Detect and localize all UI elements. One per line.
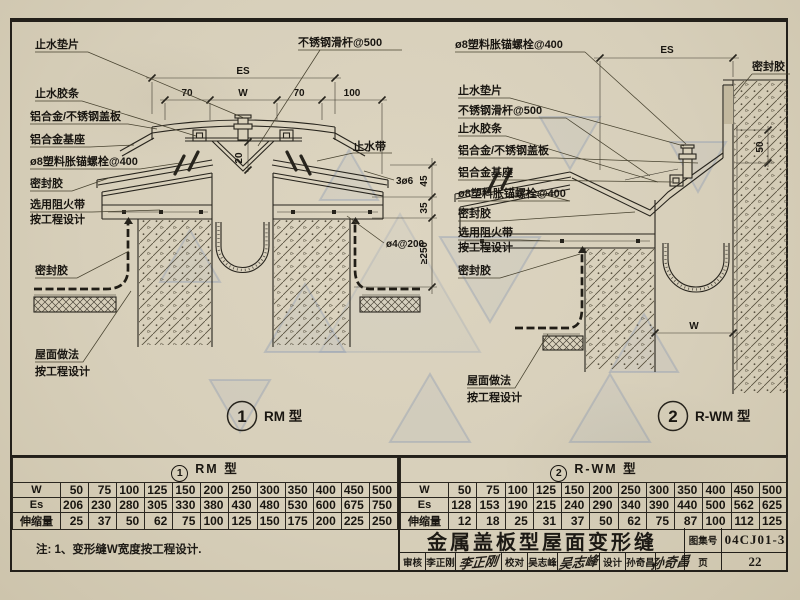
label-cover-plate: 铝合金/不锈钢盖板 [30, 109, 122, 123]
table-cell: 430 [229, 497, 257, 512]
right-caption-number: 2 [668, 407, 677, 426]
table-cell: 440 [675, 497, 703, 512]
label-slide-rod: 不锈钢滑杆@500 [458, 103, 542, 117]
table-cell: 87 [675, 512, 703, 529]
table-cell: 450 [731, 482, 759, 497]
rm-row-ext: 伸缩量 2537506275100125150175200225250 [13, 512, 398, 529]
atlas-number: 04CJ01-3 [722, 528, 788, 552]
table-cell: 230 [89, 497, 117, 512]
table-cell: 50 [449, 482, 477, 497]
label-fire-barrier-2: 按工程设计 [30, 212, 85, 226]
table-cell: 562 [731, 497, 759, 512]
dim-70b: 70 [293, 88, 305, 99]
table-cell: 200 [201, 482, 229, 497]
table-cell: 390 [646, 497, 674, 512]
rwm-table-title: R-WM 型 [574, 462, 637, 476]
rwm-table-half: 2R-WM 型 W 507510012515020025030035040045… [400, 457, 788, 528]
dim-w-right: W [689, 321, 699, 332]
left-caption-text: RM 型 [264, 408, 303, 424]
table-cell: 150 [173, 482, 201, 497]
table-cell: 100 [201, 512, 229, 529]
label-sealant-lower: 密封胶 [458, 263, 491, 277]
rm-table-half: 1RM 型 W 50751001251502002503003504004505… [12, 457, 400, 528]
table-cell: 225 [341, 512, 369, 529]
table-cell: 37 [89, 512, 117, 529]
note-text: 注: 1、变形缝W宽度按工程设计. [36, 541, 201, 557]
label-rubber-strip: 止水胶条 [458, 121, 503, 135]
table-cell: 300 [257, 482, 285, 497]
label-anchor-bolt: ø8塑料胀锚螺栓@400 [458, 186, 566, 200]
table-cell: 112 [731, 512, 759, 529]
rwm-number-badge: 2 [550, 465, 567, 482]
table-cell: 75 [89, 482, 117, 497]
label-alum-base: 铝合金基座 [30, 132, 85, 146]
table-cell: 250 [229, 482, 257, 497]
right-detail-concrete-hatch [586, 81, 788, 393]
table-cell: 125 [533, 482, 561, 497]
table-cell: 206 [61, 497, 89, 512]
table-cell: 75 [477, 482, 505, 497]
title-block: 金属盖板型屋面变形缝 图集号 04CJ01-3 审核 李正刚 李正刚 校对 吴志… [400, 528, 788, 570]
table-cell: 340 [618, 497, 646, 512]
label-cover-plate: 铝合金/不锈钢盖板 [458, 143, 550, 157]
audit-name: 李正刚 [426, 553, 456, 570]
rm-number-badge: 1 [171, 465, 188, 482]
right-caption-text: R-WM 型 [695, 408, 751, 424]
table-cell: 100 [505, 482, 533, 497]
page-label: 页 [685, 553, 722, 570]
label-fire-barrier-1: 选用阻火带 [458, 225, 513, 239]
table-cell: 50 [61, 482, 89, 497]
table-cell: 100 [117, 482, 145, 497]
rm-table-header: 1RM 型 [13, 458, 398, 483]
label-roof-finish-2: 按工程设计 [467, 390, 522, 404]
left-detail-u-waterstop [216, 222, 269, 273]
table-cell: 153 [477, 497, 505, 512]
label-alum-base: 铝合金基座 [458, 165, 513, 179]
dim-es-right: ES [660, 45, 674, 56]
table-cell: 250 [369, 512, 397, 529]
table-cell: 400 [313, 482, 341, 497]
table-cell: 675 [341, 497, 369, 512]
sheet: ES 70 W 70 100 20 45 35 [0, 0, 800, 600]
label-3d6: 3ø6 [396, 176, 414, 187]
dim-w: W [238, 88, 248, 99]
label-fire-barrier-1: 选用阻火带 [30, 197, 85, 211]
label-fire-barrier-2: 按工程设计 [458, 240, 513, 254]
left-detail: ES 70 W 70 100 20 45 35 [30, 35, 437, 431]
table-cell: 150 [562, 482, 590, 497]
rm-row-es: Es 206230280305330380430480530600675750 [13, 497, 398, 512]
table-cell: 380 [201, 497, 229, 512]
rm-row-w-label: W [13, 482, 61, 497]
table-cell: 350 [675, 482, 703, 497]
table-cell: 400 [703, 482, 731, 497]
label-rubber-strip: 止水胶条 [35, 86, 80, 100]
label-mesh: ø4@200 [386, 239, 425, 250]
label-slide-rod: 不锈钢滑杆@500 [298, 35, 382, 49]
label-anchor-bolt: ø8塑料胀锚螺栓@400 [30, 154, 138, 168]
dim-35: 35 [419, 202, 430, 214]
design-label: 设计 [600, 553, 626, 570]
left-caption-number: 1 [237, 407, 246, 426]
check-name: 吴志峰 [528, 553, 558, 570]
table-cell: 600 [313, 497, 341, 512]
table-cell: 100 [703, 512, 731, 529]
label-roof-finish-1: 屋面做法 [35, 347, 79, 361]
design-signature: 孙奇昌 [656, 553, 685, 570]
title-block-row1: 金属盖板型屋面变形缝 图集号 04CJ01-3 [400, 528, 788, 553]
table-cell: 75 [173, 512, 201, 529]
rwm-spec-table: 2R-WM 型 W 507510012515020025030035040045… [400, 457, 788, 530]
label-sealant-top: 密封胶 [752, 59, 785, 73]
dimension-tables: 1RM 型 W 50751001251502002503003504004505… [12, 455, 788, 528]
table-cell: 125 [145, 482, 173, 497]
rwm-row-w-label: W [401, 482, 449, 497]
table-cell: 128 [449, 497, 477, 512]
note: 注: 1、变形缝W宽度按工程设计. [12, 528, 400, 570]
rm-table-title: RM 型 [195, 462, 238, 476]
dim-100: 100 [344, 88, 361, 99]
bottom-strip: 注: 1、变形缝W宽度按工程设计. 金属盖板型屋面变形缝 图集号 04CJ01-… [12, 528, 788, 570]
rm-row-es-label: Es [13, 497, 61, 512]
right-detail-caption: 2 R-WM 型 [659, 402, 751, 431]
table-cell: 62 [145, 512, 173, 529]
dim-45: 45 [419, 175, 430, 187]
rm-spec-table: 1RM 型 W 50751001251502002503003504004505… [12, 457, 398, 530]
table-cell: 240 [562, 497, 590, 512]
rwm-row-es-label: Es [401, 497, 449, 512]
page-number: 22 [722, 553, 788, 570]
dim-50: 50 [755, 141, 766, 153]
table-cell: 200 [590, 482, 618, 497]
rwm-row-es: Es 128153190215240290340390440500562625 [401, 497, 788, 512]
check-label: 校对 [502, 553, 528, 570]
label-roof-finish-1: 屋面做法 [467, 373, 511, 387]
table-cell: 750 [369, 497, 397, 512]
sheet-title: 金属盖板型屋面变形缝 [400, 528, 685, 552]
table-cell: 330 [173, 497, 201, 512]
rwm-table-header: 2R-WM 型 [401, 458, 788, 483]
dim-20: 20 [234, 152, 245, 164]
label-anchor-bolt-top: ø8塑料胀锚螺栓@400 [455, 37, 563, 51]
table-cell: 290 [590, 497, 618, 512]
left-detail-concrete-hatch [139, 220, 349, 345]
table-cell: 305 [145, 497, 173, 512]
table-cell: 625 [759, 497, 787, 512]
table-cell: 200 [313, 512, 341, 529]
label-waterstop-band: 止水带 [353, 139, 386, 153]
rwm-row-w: W 5075100125150200250300350400450500 [401, 482, 788, 497]
table-cell: 350 [285, 482, 313, 497]
table-cell: 25 [61, 512, 89, 529]
label-waterstop-gasket: 止水垫片 [35, 37, 79, 51]
audit-label: 审核 [400, 553, 426, 570]
table-cell: 150 [257, 512, 285, 529]
table-cell: 300 [646, 482, 674, 497]
table-cell: 125 [759, 512, 787, 529]
table-cell: 190 [505, 497, 533, 512]
check-signature: 吴志峰 [558, 553, 600, 570]
right-detail-u-waterstop [663, 243, 729, 292]
atlas-number-label: 图集号 [685, 528, 722, 552]
audit-signature: 李正刚 [456, 553, 502, 570]
table-cell: 215 [533, 497, 561, 512]
table-cell: 450 [341, 482, 369, 497]
table-cell: 500 [759, 482, 787, 497]
dim-es: ES [236, 66, 250, 77]
table-cell: 125 [229, 512, 257, 529]
label-sealant-lower: 密封胶 [35, 263, 68, 277]
label-waterstop-gasket: 止水垫片 [458, 83, 502, 97]
left-detail-center-bolt [234, 115, 252, 140]
title-block-row2: 审核 李正刚 李正刚 校对 吴志峰 吴志峰 设计 孙奇昌 孙奇昌 页 22 [400, 553, 788, 570]
detail-drawings: ES 70 W 70 100 20 45 35 [10, 22, 788, 455]
label-sealant-upper: 密封胶 [458, 206, 491, 220]
table-cell: 500 [703, 497, 731, 512]
dim-70a: 70 [181, 88, 193, 99]
rm-row-ext-label: 伸缩量 [13, 512, 61, 529]
label-sealant-upper: 密封胶 [30, 176, 63, 190]
table-cell: 530 [285, 497, 313, 512]
label-roof-finish-2: 按工程设计 [35, 364, 90, 378]
rm-row-w: W 5075100125150200250300350400450500 [13, 482, 398, 497]
table-cell: 500 [369, 482, 397, 497]
table-cell: 50 [117, 512, 145, 529]
table-cell: 280 [117, 497, 145, 512]
table-cell: 175 [285, 512, 313, 529]
table-cell: 480 [257, 497, 285, 512]
table-cell: 250 [618, 482, 646, 497]
